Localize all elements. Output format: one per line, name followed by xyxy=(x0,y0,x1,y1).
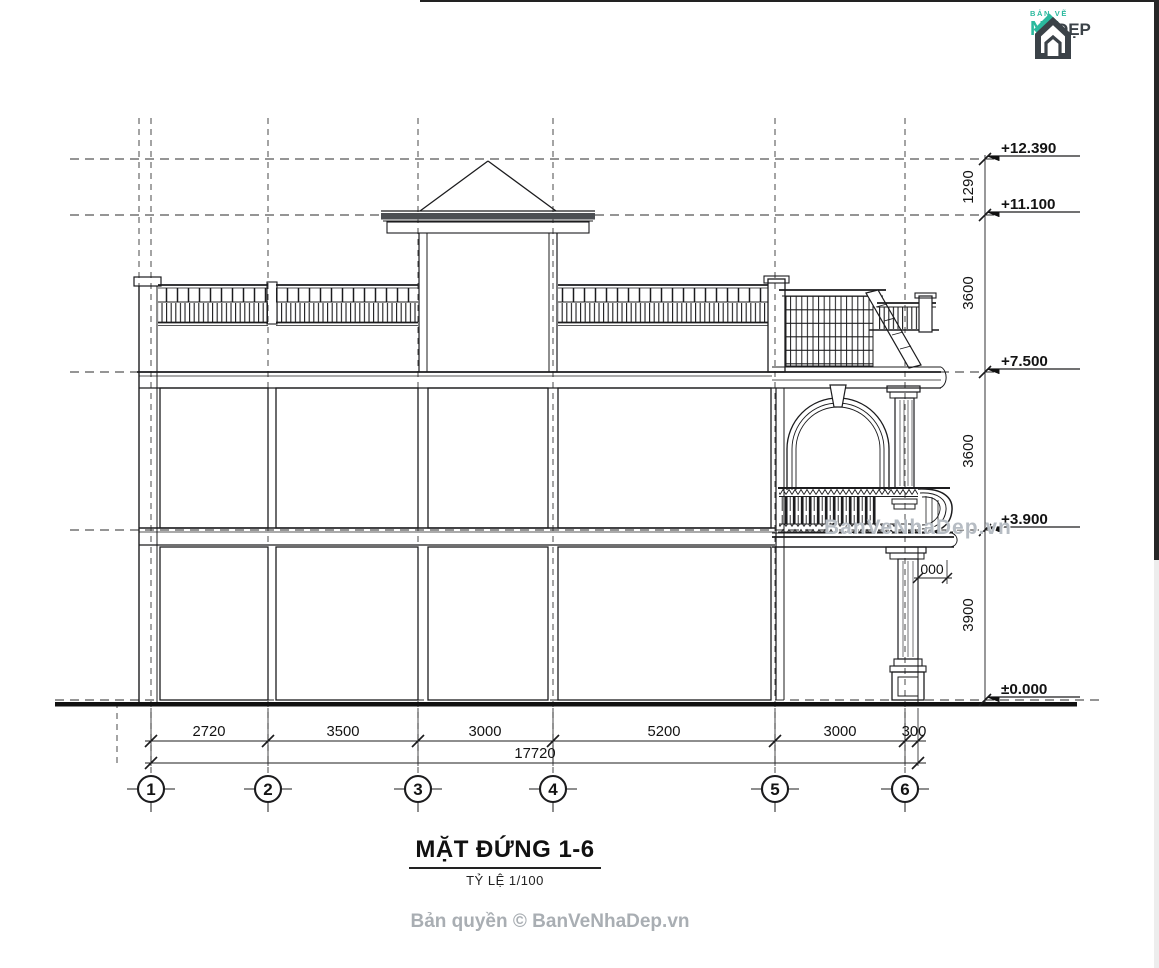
copyright-text: Bản quyền © BanVeNhaDep.vn xyxy=(350,911,750,933)
dim-5200: 5200 xyxy=(648,724,681,740)
level-markers xyxy=(986,156,1080,702)
grid-number-6: 6 xyxy=(900,780,909,799)
vdim-3900: 3900 xyxy=(960,598,977,631)
roof-terrace-railing xyxy=(158,276,789,372)
grid-number-5: 5 xyxy=(770,780,779,799)
dim-3000b: 3000 xyxy=(824,724,857,740)
drawing-scale: TỶ LỆ 1/100 xyxy=(395,873,615,888)
dimension-labels-right: 1290 3600 3600 3900 xyxy=(960,170,977,631)
dim-total-17720: 17720 xyxy=(514,746,555,762)
grid-number-3: 3 xyxy=(413,780,422,799)
dim-3500: 3500 xyxy=(327,724,360,740)
tower-roof xyxy=(381,161,595,372)
facade-panels-upper xyxy=(160,388,771,528)
building-elevation xyxy=(55,161,1077,707)
title-block: MẶT ĐỨNG 1-6 TỶ LỆ 1/100 xyxy=(395,836,615,888)
level-labels: +12.390 +11.100 +7.500 +3.900 ±0.000 xyxy=(1001,140,1056,698)
scrollbar-thumb[interactable] xyxy=(1154,0,1159,560)
elevation-drawing: 2720 3500 3000 5200 3000 300 17720 xyxy=(0,0,1159,968)
architectural-elevation-sheet: BẢN VẼ NH ĐẸP xyxy=(0,0,1159,968)
vdim-3600a: 3600 xyxy=(960,276,977,309)
left-wall xyxy=(134,277,161,702)
detail-dim-label: 000 xyxy=(920,561,944,577)
dimension-labels-bottom: 2720 3500 3000 5200 3000 300 17720 xyxy=(193,724,927,762)
drawing-title: MẶT ĐỨNG 1-6 xyxy=(409,836,600,869)
ground-line xyxy=(55,702,1077,707)
tiled-roof xyxy=(779,290,939,368)
facade-panels-ground xyxy=(160,547,771,700)
level-label-12390: +12.390 xyxy=(1001,140,1056,157)
grid-number-4: 4 xyxy=(548,780,558,799)
level-label-0000: ±0.000 xyxy=(1001,681,1047,698)
level-label-7500: +7.500 xyxy=(1001,353,1048,370)
dim-3000a: 3000 xyxy=(469,724,502,740)
grid-number-2: 2 xyxy=(263,780,272,799)
grid-number-1: 1 xyxy=(146,780,155,799)
floor-band-7500 xyxy=(137,367,946,388)
dim-300: 300 xyxy=(902,724,927,740)
vdim-1290: 1290 xyxy=(960,170,977,203)
level-dashed-lines xyxy=(55,159,1105,700)
vdim-3600b: 3600 xyxy=(960,434,977,467)
level-label-11100: +11.100 xyxy=(1001,196,1055,213)
watermark-text: BanVeNhaDep.vn xyxy=(824,516,1012,540)
dim-2720: 2720 xyxy=(193,724,226,740)
dimensions-right xyxy=(979,153,991,706)
pier-grid5 xyxy=(776,388,918,702)
grid-bubbles xyxy=(127,776,929,812)
